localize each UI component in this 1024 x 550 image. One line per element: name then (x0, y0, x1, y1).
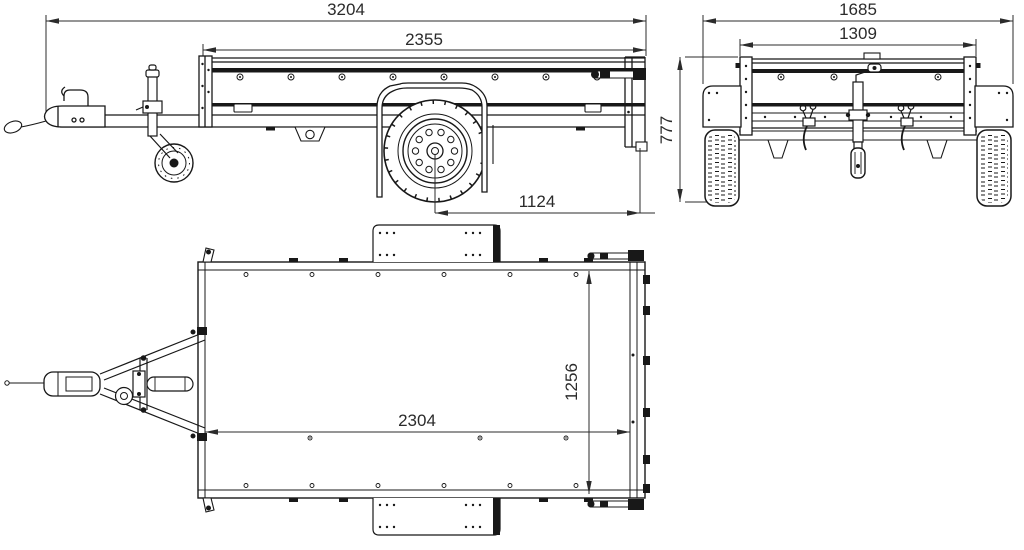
dim-inner-width-value: 1256 (562, 363, 581, 401)
coupler-plan (5, 372, 100, 396)
dim-box-width: 1309 (740, 24, 976, 56)
fender-panel-left (703, 86, 741, 127)
fender-top (373, 225, 500, 262)
top-view-drawing: 2304 1256 (0, 222, 690, 550)
coupler-handle (62, 87, 88, 106)
board-latch-left (800, 104, 816, 150)
side-view-drawing: 3204 2355 (0, 0, 655, 230)
technical-drawing-canvas: 3204 2355 (0, 0, 1024, 550)
dim-inner-width: 1256 (562, 271, 592, 494)
front-corner-post (199, 56, 212, 127)
reflector-rear (585, 104, 601, 112)
reflector-front (234, 104, 252, 112)
corner-hook-top (203, 248, 214, 262)
coupler (45, 87, 106, 127)
fender-panel-right (975, 86, 1013, 127)
top-view-trailer-body (5, 225, 650, 535)
dim-box-length: 2355 (203, 30, 646, 56)
dim-box-width-value: 1309 (839, 24, 877, 43)
dim-axle-to-rear-value: 1124 (519, 192, 556, 211)
corner-hook-bottom (203, 498, 214, 512)
rivet-row (237, 74, 600, 80)
dim-overall-width-value: 1685 (839, 0, 877, 19)
tailgate-hinges (643, 275, 650, 493)
dim-inner-length: 2304 (205, 411, 630, 435)
rear-latch-top (588, 250, 645, 261)
dim-overall-height-value: 777 (657, 116, 676, 144)
dim-inner-length-value: 2304 (398, 411, 436, 430)
dim-box-length-value: 2355 (405, 30, 443, 49)
safety-cable (3, 119, 46, 135)
bed (198, 258, 650, 502)
wheel-left (705, 130, 739, 206)
side-view-trailer-body (3, 56, 647, 202)
wheel-right (977, 130, 1011, 206)
floor-rivets (308, 354, 635, 441)
front-view-trailer-body (703, 53, 1013, 206)
board-latch-right (898, 104, 914, 150)
dim-overall-length: 3204 (46, 0, 646, 120)
jockey-plan (116, 371, 194, 405)
fender-bottom (373, 498, 500, 535)
jockey-wheel (136, 65, 193, 182)
front-view-drawing: 1685 1309 777 (655, 0, 1024, 230)
rear-latch-bottom (588, 499, 645, 510)
dim-overall-length-value: 3204 (327, 0, 365, 19)
